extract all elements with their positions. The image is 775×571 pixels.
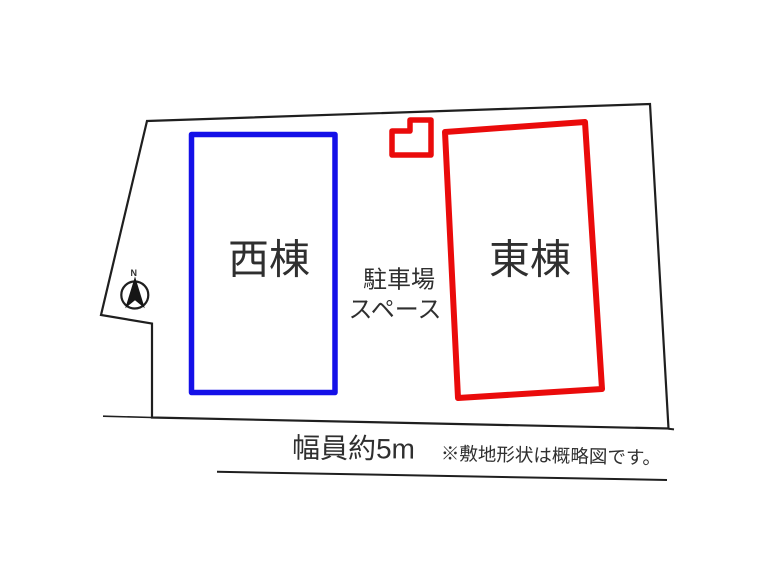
west-building-label: 西棟: [228, 237, 310, 283]
disclaimer-note: ※敷地形状は概略図です。: [441, 443, 662, 469]
parking-label-line2: スペース: [348, 297, 441, 324]
road-lower-edge: [217, 472, 667, 480]
site-plan-drawing: N 西棟 東棟 駐車場 スペース 幅員約5m ※敷地形状は概略図です。: [0, 0, 775, 571]
east-annex-outline: [392, 120, 431, 155]
road-upper-edge-right-stub: [669, 429, 675, 430]
parking-label-line1: 駐車場: [363, 267, 435, 294]
road-width-label: 幅員約5m: [292, 432, 415, 464]
compass: N: [121, 268, 148, 309]
compass-north-label: N: [131, 268, 138, 278]
site-plan-canvas: N 西棟 東棟 駐車場 スペース 幅員約5m ※敷地形状は概略図です。: [0, 0, 775, 571]
road-upper-edge-left-extension: [103, 416, 152, 417]
east-building-label: 東棟: [489, 237, 571, 283]
